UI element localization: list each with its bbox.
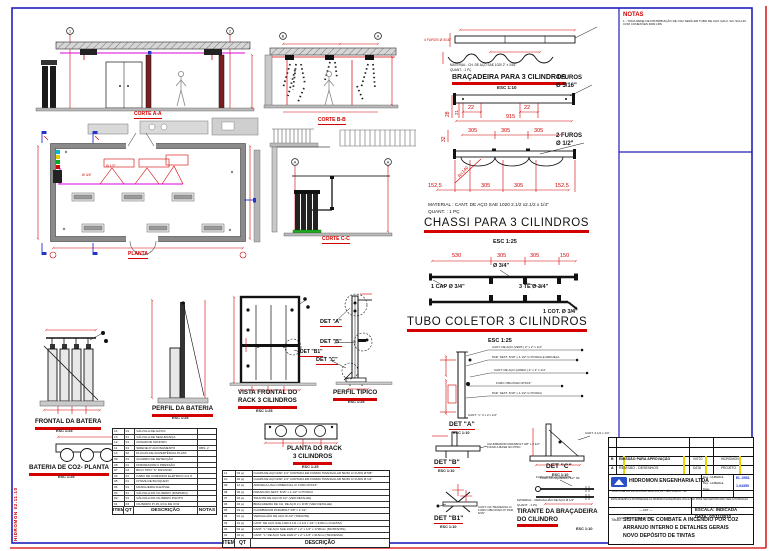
table-row: 0602 pçBRAÇADEIRA DE CH. DE AÇO 2 x 3/16… (223, 501, 389, 507)
table-cell (198, 457, 216, 462)
tirante-title-2: DO CILINDRO (517, 517, 558, 526)
tirante-quant: QUANT. : 1 PÇ (517, 504, 537, 507)
table-cell: 06 (113, 474, 125, 479)
table-cell: 08 (113, 463, 125, 468)
table-cell: 05 (113, 479, 125, 484)
det-a-note-3: CANT. DE AÇO (HORIZ.) 2" x 2" x 1/4" (494, 369, 546, 372)
table-cell: MANGUEIRA FLEXÍVEL (135, 485, 197, 490)
table-row: 0504 pçCHUMBADOR PARABOLT 3/8" x 2.1/2" (223, 507, 389, 513)
company-logo (611, 477, 627, 487)
table-cell (198, 435, 216, 440)
dim-915: 915 (506, 115, 515, 121)
table-row: 1201AVISADOR SONORO (113, 439, 216, 445)
table-cell: 02 pç (236, 533, 253, 538)
corte-b-elevation (264, 33, 398, 112)
table-cell: 01 pç (236, 521, 253, 526)
dim-1525b: 152,5 (555, 184, 569, 190)
tirante-esc: ESC 1:10 (576, 527, 592, 531)
bracadeira-red-note: 4 FUROS Ø 5/16" (424, 39, 451, 43)
table-cell (198, 485, 216, 490)
res-label: Res.: (703, 481, 710, 485)
table-cell: 02 (223, 527, 236, 532)
parts-table-left: 1401VÁLVULA DE ALÍVIO1301VÁLVULA DE SEGU… (112, 428, 217, 515)
tubo-dim-150: 150 (560, 254, 569, 260)
table-cell: 04 (113, 485, 125, 490)
drawing-code-1: EL-0951 (736, 477, 750, 481)
det-a-note-2: PAR. SEXT. 5/16" x 1.1/2" C/ PORCA E ARR… (492, 356, 559, 359)
table-cell: QT (124, 507, 134, 514)
svg-text:A: A (387, 160, 390, 165)
table-cell: 14 (113, 429, 125, 434)
dim-305e: 305 (514, 184, 523, 190)
perfil-tipico-esc: ESC 1:25 (348, 400, 364, 404)
det-a-esc: ESC 1:10 (453, 431, 469, 435)
vista-frontal-label-1: VISTA FRONTAL DO (238, 390, 297, 397)
company-name: HIDROMON ENGENHARIA LTDA (629, 479, 709, 485)
table-cell: 02 pç (236, 502, 253, 507)
dim-305d: 305 (481, 184, 490, 190)
table-cell: 01 (125, 496, 136, 501)
notes-line: 1 - TODA REDE DE DISTRIBUIÇÃO DE CO2 SER… (623, 20, 749, 26)
rev1-col4: HIDROMON (721, 458, 739, 462)
table-cell: CHUMBADOR PARABOLT 3/8" x 2.1/2" (253, 508, 389, 513)
table-cell: DESCRIÇÃO (134, 507, 198, 514)
dim-28: 28 (446, 111, 451, 117)
table-cell: 02 pç (236, 496, 253, 501)
table-row: 0901QUADRO DE DETECÇÃO (113, 456, 216, 462)
table-row: 0912 pçARRUELA LISA COMERCIAL C/ FURO Ø … (223, 482, 389, 488)
rev1-desc: EMISSÃO PARA APROVAÇÃO (619, 458, 670, 462)
dim-305c: 305 (534, 129, 543, 135)
table-cell: BRAÇADEIRA DE CH. DE AÇO 2 x 3/16" (VER … (253, 502, 389, 507)
table-header-row: ITEMQTDESCRIÇÃO (223, 538, 389, 547)
tubo-te: 3 TE Ø 3/4" (519, 285, 548, 291)
table-cell: 11 (223, 471, 236, 476)
svg-text:A: A (294, 160, 297, 165)
titulo-line-1: SISTEMA DE COMBATE A INCÊNDIO POR CO2 (623, 518, 738, 524)
dim-21: 21 (455, 110, 460, 115)
table-cell: 01 (113, 502, 125, 507)
table-cell: DESCRIÇÃO (251, 539, 389, 547)
rev1-mark: B (611, 458, 614, 462)
table-row: 1101SIRENE P/ ACIONAMENTOOBS. 2 (113, 445, 216, 451)
margin-stamp: HIDROMON 02.11.10 (14, 487, 19, 541)
det-b1-esc: ESC 1:10 (440, 525, 456, 529)
table-cell (198, 451, 216, 456)
det-a-note-1: CANT. DE AÇO (VERT.) 2" x 2" x 1/4" (492, 346, 542, 349)
table-cell: CHAPA DE AÇO ESP. 1/4" CORTADA EM FORMA … (253, 471, 389, 476)
art-note: — ART — (639, 509, 652, 512)
perfil-tipico-label: PERFIL TIPICO (333, 390, 377, 399)
dim-305a: 305 (468, 129, 477, 135)
dim-305b: 305 (501, 129, 510, 135)
det-b1-label: DET "B1" (434, 516, 463, 524)
table-cell: 02 (125, 451, 136, 456)
table-row: 0703BICO TIPO "S" DIFUSOR (113, 467, 216, 473)
tubo-cot: 1 COT. Ø 3/4" (543, 310, 578, 316)
det-a-note-5: PAR. SEXT. 5/16" x 1.1/2" C/ PORCA (492, 392, 542, 395)
table-row: 0401MANGUEIRA FLEXÍVEL (113, 484, 216, 490)
dim-1525a: 152,5 (428, 184, 442, 190)
table-cell (198, 440, 216, 445)
table-cell (198, 463, 216, 468)
det-a-note-6: CANT. "L" 2 x 2 x 1/4" (468, 414, 497, 417)
table-cell (198, 429, 216, 434)
table-row: 0102 pçCANT. "L" DE AÇO SAE 1020 2" x 2"… (223, 532, 389, 538)
person-figure (324, 71, 334, 105)
table-cell: 01 pç (236, 514, 253, 519)
dim-32: 32 (442, 136, 447, 142)
chassi-esc: ESC 1:25 (493, 240, 517, 246)
vista-frontal-esc: ESC 1:25 (256, 409, 272, 413)
table-cell: 03 (113, 491, 125, 496)
rev2-col4: PROJETO (721, 467, 736, 471)
table-row: 0103CILINDRO P/ 45,4 KG DE CO2 (113, 501, 216, 507)
chassi-quant: QUANT. : 1 PÇ (428, 210, 460, 215)
plan-view (38, 118, 416, 258)
table-cell: PARAFUSO SEXT. 5/16" x 1.1/2" C/ PORCA (253, 490, 389, 495)
table-cell: 09 (223, 483, 236, 488)
table-cell: 10 (113, 451, 125, 456)
table-cell: 09 (113, 457, 125, 462)
furos2-label: 2 FUROS (556, 133, 582, 139)
table-cell: 10 (223, 477, 236, 482)
titulo-line-3: NOVO DEPÓSITO DE TINTAS (623, 534, 695, 540)
planta-rack-label-1: PLANTA DO RACK (287, 446, 342, 453)
table-cell: VÁLVULA DE SEGURANÇA (135, 435, 197, 440)
table-row: 0501CHAVE DE BLOQUEIO (113, 478, 216, 484)
det-b1-pointer: DET "B1" (300, 350, 323, 357)
table-row: 0702 pçTIRANTE DE AÇO Ø 1/2" (VER DETALH… (223, 495, 389, 501)
res-value: HUBERLE (710, 481, 723, 485)
rev2-col3: DATA (693, 467, 701, 471)
des-label: Des.: (703, 475, 710, 479)
des-field: Des.: HUBERLE (703, 476, 724, 479)
tirante-note: FURO ROSQUEADO 1/2" NF (540, 477, 580, 480)
table-cell: 02 (113, 496, 125, 501)
table-cell: BICO TIPO "S" DIFUSOR (135, 468, 197, 473)
table-cell: 07 (113, 468, 125, 473)
table-cell: 01 (125, 479, 136, 484)
table-cell: 02 pç (236, 477, 253, 482)
tubo-dim-530: 530 (452, 254, 461, 260)
table-cell: 02 pç (236, 527, 253, 532)
table-cell: 03 (223, 521, 236, 526)
notes-title: NOTAS (623, 12, 644, 18)
table-row: 0301 pçCANT. DE AÇO SAE 1020 2.1/2 x 2.1… (223, 520, 389, 526)
titulo-line-2: ARRANJO INTERNO E DETALHES GERAIS (623, 526, 729, 532)
table-cell (198, 496, 216, 501)
tubo-dim-305b: 305 (530, 254, 539, 260)
chassi-material: MATERIAL : CANT. DE AÇO SAE 1020 2.1/2 x… (428, 203, 549, 208)
person-figure (176, 71, 186, 106)
data-field-label: Data: (703, 488, 710, 491)
table-cell: 08 (223, 490, 236, 495)
table-cell: 01 (125, 446, 136, 451)
tirante-material: MATERIAL : VERGALHÃO DE AÇO Ø 1/2" (517, 499, 574, 502)
table-cell: 01 (125, 474, 136, 479)
escala-value: ESCALA: INDICADA (695, 508, 737, 513)
table-cell: 01 (125, 491, 136, 496)
table-cell: 03 (125, 468, 136, 473)
des-value: HUBERLE (710, 475, 723, 479)
table-cell: CILINDRO P/ 45,4 KG DE CO2 (135, 502, 197, 507)
table-cell (198, 479, 216, 484)
company-address: RUA JOSÉ DO PATROCÍNIO BASTOS, 85 - SÃO … (612, 491, 687, 494)
table-cell: CANT. "L" DE AÇO SAE 1020 2" x 2" x 1/4"… (253, 527, 389, 532)
det-b-esc: ESC 1:10 (438, 469, 454, 473)
table-row: 0201VÁLVULA DO CILINDRO PILOTO (113, 495, 216, 501)
table-cell: 06 (223, 502, 236, 507)
corte-c-elevation (270, 129, 392, 236)
det-a-label: DET "A" (449, 422, 475, 430)
table-cell: OBS. 2 (198, 446, 216, 451)
table-cell (198, 491, 216, 496)
legal-note: ESTE DESENHO É PROPRIEDADE DA HIDROMON E… (611, 499, 749, 502)
chassi-title: CHASSI PARA 3 CILINDROS (424, 217, 589, 231)
conveyor-comb (340, 130, 416, 146)
bracadeira-title: BRAÇADEIRA PARA 3 CILINDROS (452, 74, 566, 83)
table-cell: CANT. "L" DE AÇO SAE 1020 2" x 2" x 1/4"… (253, 533, 389, 538)
plan-pipe-dia-34: Ø 3/4" (82, 174, 92, 178)
table-row: 0301VÁLVULA DO CILINDRO (DISPARO) (113, 490, 216, 496)
table-cell: 01 (125, 435, 136, 440)
res-field: Res.: HUBERLE (703, 482, 724, 485)
bracadeira-material: MATERIAL : CH. DE AÇO SAE 1020 2" x 3/16… (450, 64, 516, 67)
table-header-row: ITEMQTDESCRIÇÃONOTAS (113, 506, 216, 514)
table-row: 0801DISPARADOR A PRESSÃO (113, 462, 216, 468)
bateria-planta-esc: ESC 1:25 (58, 475, 74, 479)
rev2-desc: REVISÃO - DESENHOS (619, 467, 658, 471)
table-row: 1102 pçCHAPA DE AÇO ESP. 1/4" CORTADA EM… (223, 471, 389, 476)
table-cell: CANT. DE AÇO SAE 1020 2.1/2 x 2.1/2 x 1/… (253, 521, 389, 526)
table-row: 1002 pçCHAPA DE AÇO ESP. 1/4" CORTADA EM… (223, 476, 389, 482)
table-cell: VÁLVULA DO CILINDRO (DISPARO) (135, 491, 197, 496)
table-cell: ARRUELA LISA COMERCIAL C/ FURO Ø 5/16" (253, 483, 389, 488)
table-cell: 01 (125, 485, 136, 490)
corte-c-label: CORTE C-C (322, 237, 350, 244)
furos2-dia: Ø 1/2" (556, 141, 574, 147)
table-row: 0601CABO DE COMANDO ELÉTRICO 2x1,5 (113, 473, 216, 479)
table-row: 1002PLACAS DE ADVERTÊNCIA PLÁST. (113, 450, 216, 456)
table-row: 1401VÁLVULA DE ALÍVIO (113, 429, 216, 434)
table-cell: CHAPA DE AÇO ESP. 1/4" CORTADA EM FORMA … (253, 477, 389, 482)
planta-rack-esc: ESC 1:25 (302, 465, 318, 469)
svg-text:B: B (282, 34, 285, 39)
table-cell: 01 (125, 429, 136, 434)
tubo-dia: Ø 3/4" (493, 264, 509, 270)
table-cell: 01 (223, 533, 236, 538)
det-c-note-1: CANT. 2.1/2 x 1/4" (585, 432, 610, 435)
bateria-planta-label: BATERIA DE CO2- PLANTA (29, 465, 109, 474)
frontal-bateria-esc: ESC 1:25 (56, 429, 72, 433)
table-cell: DISPARADOR A PRESSÃO (135, 463, 197, 468)
table-cell: CABO DE COMANDO ELÉTRICO 2x1,5 (135, 474, 197, 479)
bracadeira-esc: ESC 1:10 (497, 86, 517, 91)
table-cell: 11 (113, 446, 125, 451)
table-row: 0806 pçPARAFUSO SEXT. 5/16" x 1.1/2" C/ … (223, 489, 389, 495)
table-row: 1301VÁLVULA DE SEGURANÇA (113, 434, 216, 440)
tubo-dim-305a: 305 (497, 254, 506, 260)
det-b-label: DET "B" (434, 460, 460, 468)
tubo-esc: ESC 1:25 (488, 339, 512, 345)
tubo-cap: 1 CAP Ø 3/4" (431, 285, 465, 291)
table-cell: 05 (223, 508, 236, 513)
table-cell: 13 (113, 435, 125, 440)
table-cell (198, 468, 216, 473)
det-a-note-4: FURO OBLONGO Ø 5/16" (496, 382, 531, 385)
table-cell: AVISADOR SONORO (135, 440, 197, 445)
parts-table-right: 1102 pçCHAPA DE AÇO ESP. 1/4" CORTADA EM… (222, 470, 390, 548)
table-row: 0202 pçCANT. "L" DE AÇO SAE 1020 2" x 2"… (223, 526, 389, 532)
logo-sail-icon (614, 479, 624, 485)
det-b-note: CHUMBADOR PARABOLT 3/8" x 2.1/2" FIXAR A… (487, 443, 547, 449)
table-cell: 04 (223, 514, 236, 519)
table-cell (198, 502, 216, 507)
table-cell: 01 (125, 463, 136, 468)
det-b1-note: CANT. DA TRAVESSA C/ FURO OBLONGO P/ PAR… (478, 506, 518, 515)
table-cell: 04 pç (236, 508, 253, 513)
table-cell: PLACAS DE ADVERTÊNCIA PLÁST. (135, 451, 197, 456)
table-cell: 07 (223, 496, 236, 501)
table-cell: ITEM (113, 507, 124, 514)
drawing-code-2: 1.04350 (736, 485, 749, 489)
det-b-pointer: DET "B" (320, 340, 342, 347)
table-cell: VÁLVULA DE ALÍVIO (135, 429, 197, 434)
det-a-pointer: DET "A" (320, 320, 342, 327)
table-cell: CHAVE DE BLOQUEIO (135, 479, 197, 484)
vista-frontal-label-2: RACK 3 CILINDROS (238, 398, 297, 407)
table-cell (198, 474, 216, 479)
furos4-dia: Ø 5/16" (556, 83, 577, 89)
title-block: B EMISSÃO PARA APROVAÇÃO VISTO HIDROMON … (608, 437, 754, 545)
corte-a-label: CORTE A-A (134, 112, 162, 119)
rack-views (230, 294, 392, 447)
table-cell: 02 pç (236, 471, 253, 476)
table-cell: ITEM (223, 539, 235, 547)
bracadeira-detail (443, 27, 597, 64)
rev2-mark: A (611, 467, 614, 471)
dim-22b: 22 (524, 106, 530, 112)
dim-22a: 22 (468, 106, 474, 112)
svg-text:A: A (377, 34, 380, 39)
plan-pipe-dia-half: Ø 1/2" (106, 165, 116, 169)
titulo-label: Título: (611, 518, 622, 522)
table-cell: SIRENE P/ ACIONAMENTO (135, 446, 197, 451)
table-cell: 01 (125, 440, 136, 445)
det-c-pointer: DET "C" (316, 358, 338, 365)
planta-label: PLANTA (128, 252, 148, 259)
table-cell: 03 (125, 502, 136, 507)
table-cell: 12 (113, 440, 125, 445)
table-cell: VERGALHÃO DE AÇO Ø 1/2" (TIRANTE) (253, 514, 389, 519)
frontal-bateria-label: FRONTAL DA BATERA (35, 419, 101, 428)
furos4-label: 4 FUROS (556, 75, 582, 81)
corte-a-elevation (36, 28, 254, 111)
planta-rack-label-2: 3 CILINDROS (293, 454, 332, 463)
bracadeira-quant: QUANT. : 1 PÇ (450, 69, 471, 72)
table-cell: 01 (125, 457, 136, 462)
perfil-bateria-label: PERFIL DA BATERIA (152, 406, 213, 415)
tirante-title-1: TIRANTE DA BRAÇADEIRA (517, 509, 598, 516)
det-c-label: DET "C" (546, 464, 572, 472)
table-cell: NOTAS (198, 507, 216, 514)
table-cell: QUADRO DE DETECÇÃO (135, 457, 197, 462)
rev1-col3: VISTO (693, 458, 703, 462)
perfil-bateria-esc: ESC 1:25 (172, 416, 188, 420)
table-row: 0401 pçVERGALHÃO DE AÇO Ø 1/2" (TIRANTE) (223, 513, 389, 519)
benches (72, 193, 224, 232)
table-cell: 06 pç (236, 490, 253, 495)
table-cell: TIRANTE DE AÇO Ø 1/2" (VER DETALHE) (253, 496, 389, 501)
drawing-sheet: 1 2 B A A A HIDROMON 02.11.10 NOTAS 1 - … (0, 0, 774, 551)
table-cell: 12 pç (236, 483, 253, 488)
table-cell: QT (235, 539, 251, 547)
tubo-title: TUBO COLETOR 3 CILINDROS (407, 316, 587, 330)
corte-b-label: CORTE B-B (318, 118, 346, 125)
table-cell: VÁLVULA DO CILINDRO PILOTO (135, 496, 197, 501)
